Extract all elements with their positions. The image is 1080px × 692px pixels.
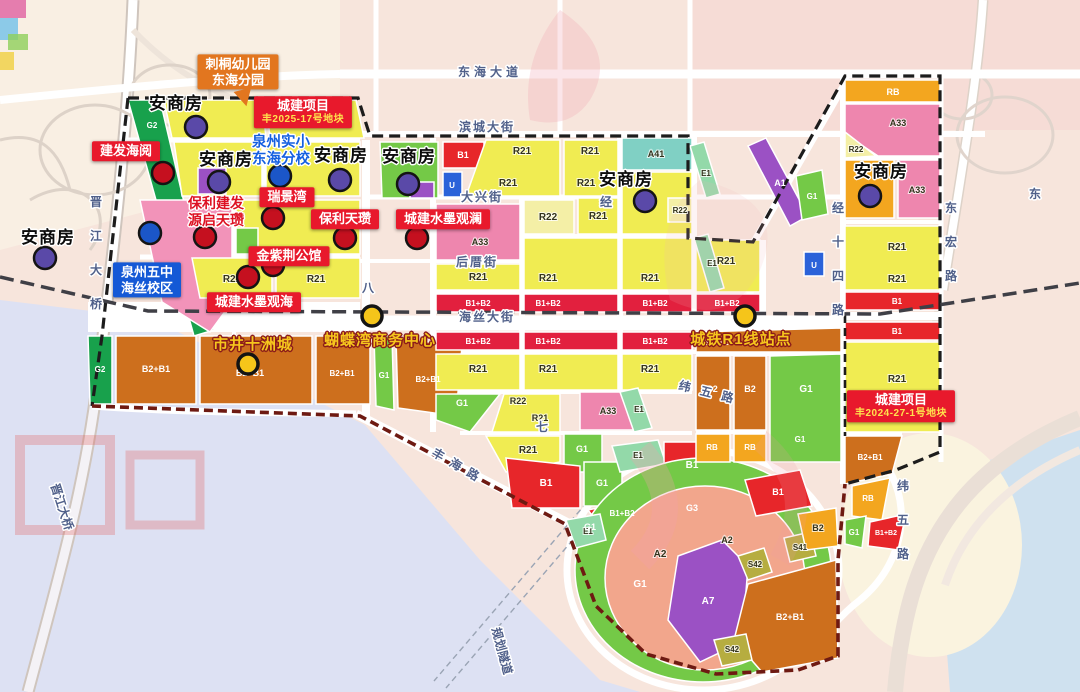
parcel-code-R21: R21 [577, 178, 596, 189]
station-marker [238, 354, 258, 374]
parcel [266, 100, 364, 138]
affordable-housing-marker [329, 169, 351, 191]
parcel-code-A2: A2 [721, 535, 733, 545]
road-label: 东海大道 [458, 64, 522, 79]
parcel-code-A7: A7 [702, 596, 715, 607]
parcel-code-R21: R21 [888, 374, 907, 385]
parcel-code-RB: RB [706, 443, 718, 452]
parcel-code-R22: R22 [673, 206, 688, 215]
parcel-code-B2: B2 [812, 523, 824, 533]
parcel-code-RB: RB [744, 443, 756, 452]
affordable-housing-marker [397, 173, 419, 195]
project-marker [334, 227, 356, 249]
affordable-housing-marker [859, 185, 881, 207]
road-label: 纬五路 [897, 478, 910, 561]
parcel-code-B1+B2: B1+B2 [465, 337, 491, 346]
road-label: 东宏路 [945, 200, 958, 283]
school-marker [269, 165, 291, 187]
parcel-code-R21: R21 [539, 273, 558, 284]
road-label: 海丝大街 [459, 309, 515, 324]
road-label: 大兴街 [461, 189, 503, 204]
parcel-code-B2+B1: B2+B1 [415, 375, 441, 384]
parcel-code-G1: G1 [379, 371, 390, 380]
parcel-code-B1+B2: B1+B2 [642, 337, 668, 346]
project-marker [237, 266, 259, 288]
parcel-code-B2+B1: B2+B1 [142, 364, 170, 374]
parcel-code-B1+B2: B1+B2 [535, 299, 561, 308]
parcel-code-R21: R21 [469, 364, 488, 375]
parcel-code-U: U [449, 181, 455, 190]
parcel-code-A33: A33 [909, 185, 926, 195]
parcel-code-B1+B2: B1+B2 [714, 299, 740, 308]
parcel-code-R21: R21 [888, 242, 907, 253]
parcel-code-R21: R21 [589, 211, 608, 222]
parcel-A33 [436, 204, 520, 260]
parcel-code-B2+B1: B2+B1 [329, 369, 355, 378]
parcel-code-E1: E1 [634, 405, 644, 414]
station-marker [735, 306, 755, 326]
parcel-code-R21: R21 [581, 146, 600, 157]
parcel-code-B2: B2 [744, 384, 756, 394]
parcel-code-E1: E1 [701, 169, 711, 178]
parcel-code-S42: S42 [748, 560, 763, 569]
parcel-code-B1: B1 [772, 487, 784, 497]
parcel-code-G3: G3 [686, 503, 698, 513]
parcel-code-A33: A33 [600, 406, 617, 416]
parcel-code-G1: G1 [576, 444, 588, 454]
project-marker [152, 162, 174, 184]
affordable-housing-marker [185, 116, 207, 138]
parcel-code-A1: A1 [774, 178, 786, 188]
affordable-housing-marker [208, 171, 230, 193]
parcel-code-G1: G1 [795, 435, 806, 444]
parcel-code-E1: E1 [633, 451, 643, 460]
parcel-code-R21: R21 [717, 256, 736, 267]
parcel-code-A41: A41 [648, 149, 665, 159]
project-marker [262, 207, 284, 229]
parcel-code-RB: RB [862, 494, 874, 503]
parcel-code-B1: B1 [540, 478, 553, 489]
road-label: 经 [600, 194, 612, 209]
parcel-code-B1+B2: B1+B2 [875, 530, 897, 537]
parcel-code-G1: G1 [849, 528, 860, 537]
parcel-code-G1: G1 [807, 192, 818, 201]
affordable-housing-marker [634, 190, 656, 212]
parcel-code-G1: G1 [799, 384, 813, 395]
parcel-code-R21: R21 [469, 272, 488, 283]
parcel [164, 100, 266, 138]
parcel-code-R21: R21 [888, 274, 907, 285]
project-marker [194, 226, 216, 248]
road-label: 东 [1029, 186, 1041, 201]
parcel-code-R21: R21 [539, 364, 558, 375]
road-label: 八 [361, 281, 375, 295]
parcel-code-R22: R22 [539, 212, 558, 223]
affordable-housing-marker [34, 247, 56, 269]
parcel-code-G2: G2 [95, 365, 106, 374]
parcel-code-R21: R21 [513, 146, 532, 157]
parcel-code-R21: R21 [499, 178, 518, 189]
road-label: 滨城大街 [459, 119, 515, 134]
parcel-code-B1: B1 [686, 460, 699, 471]
parcel-code-A2: A2 [654, 549, 667, 560]
parcel-code-G1: G1 [456, 398, 468, 408]
parcel-code-S42: S42 [725, 645, 740, 654]
parcel-code-R21: R21 [307, 274, 326, 285]
parcel-code-B2+B1: B2+B1 [776, 612, 804, 622]
parcel-code-S41: S41 [793, 543, 808, 552]
parcel-code-B1: B1 [892, 327, 903, 336]
school-marker [139, 222, 161, 244]
road-label: 七 [536, 420, 548, 434]
parcel [236, 228, 258, 254]
parcel-code-G1: G1 [633, 579, 647, 590]
parcel-code-U: U [811, 261, 817, 270]
parcel-code-A33: A33 [472, 237, 489, 247]
parcel-code-G1: G1 [596, 478, 608, 488]
parcel-code-B2+B1: B2+B1 [703, 338, 729, 347]
parcel-code-E1: E1 [707, 259, 717, 268]
project-marker [262, 254, 284, 276]
road-label: 后厝街 [456, 254, 498, 269]
station-marker [362, 306, 382, 326]
parcel-code-A33: A33 [890, 118, 907, 128]
parcel-code-G1: G1 [584, 522, 596, 532]
parcel-code-B1+B2: B1+B2 [642, 299, 668, 308]
parcel-code-R21: R21 [641, 364, 660, 375]
project-marker [406, 227, 428, 249]
parcel-code-B1+B2: B1+B2 [465, 299, 491, 308]
parcel-code-R21: R21 [519, 445, 538, 456]
parcel-code-R22: R22 [510, 396, 527, 406]
parcel-code-B1+B2: B1+B2 [535, 337, 561, 346]
parcel-code-R22: R22 [849, 145, 864, 154]
map-canvas: G2R21R21G2B2+B1B2+B1B2+B1G1B2+B1B1UR21R2… [0, 0, 1080, 692]
parcel-code-R21: R21 [641, 273, 660, 284]
parcel-code-B1: B1 [457, 150, 469, 160]
planning-map: G2R21R21G2B2+B1B2+B1B2+B1G1B2+B1B1UR21R2… [0, 0, 1080, 692]
parcel-code-B1: B1 [892, 297, 903, 306]
parcel-code-B1+B2: B1+B2 [609, 509, 635, 518]
parcel-code-B2+B1: B2+B1 [857, 453, 883, 462]
parcel-R21 [845, 342, 940, 432]
parcel-code-G2: G2 [147, 121, 158, 130]
parcel-code-RB: RB [887, 87, 900, 97]
